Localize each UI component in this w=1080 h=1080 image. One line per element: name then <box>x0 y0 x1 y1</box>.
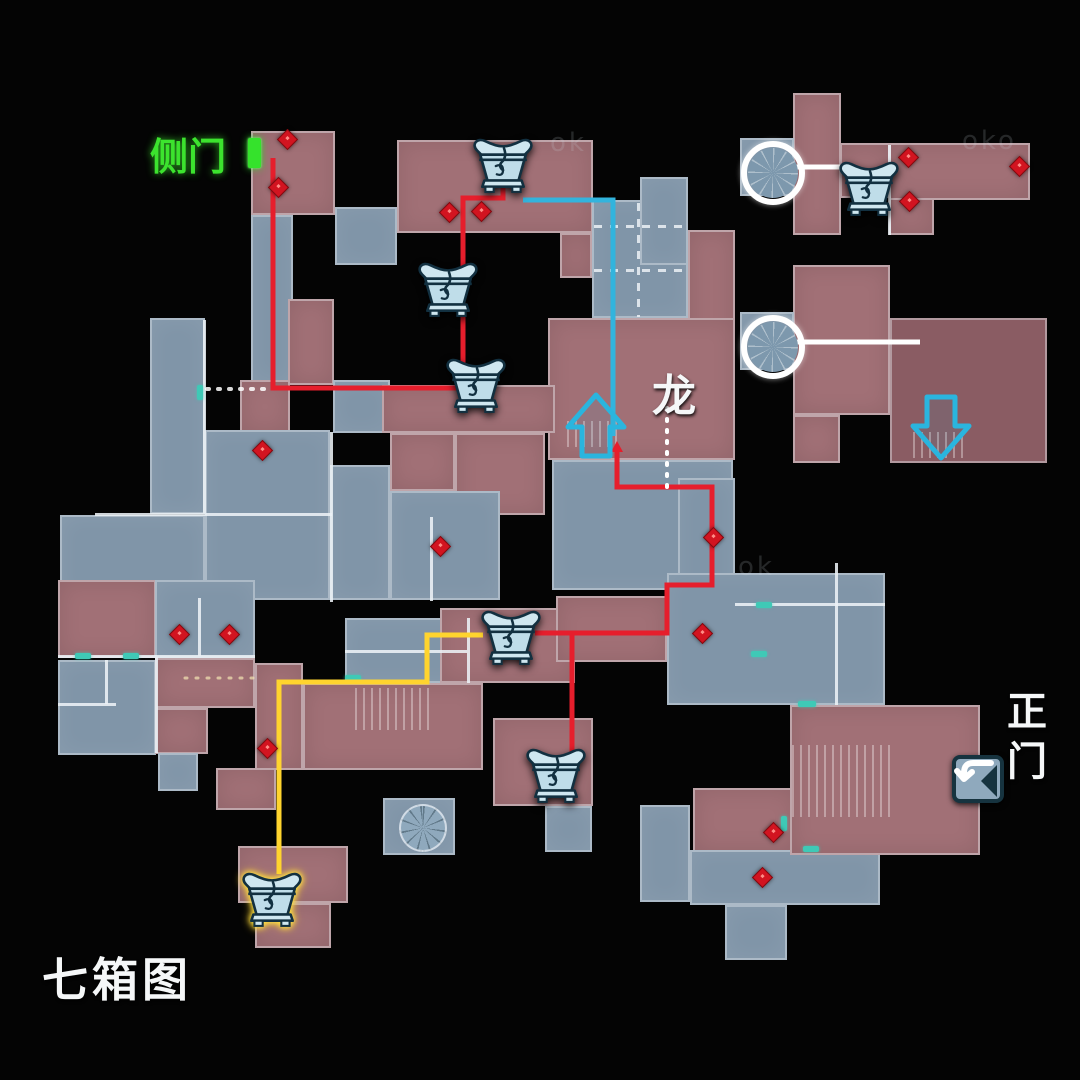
main-gate-label: 正门 <box>994 690 1052 810</box>
watermark-text: ok <box>550 128 587 158</box>
side-door-label: 侧门 <box>150 126 226 181</box>
game-map-screenshot: 侧门 龙 正门 七箱图 okookok <box>0 0 1080 1080</box>
labels-layer: 侧门 龙 正门 七箱图 okookok <box>0 0 1080 1080</box>
map-title: 七箱图 <box>42 944 192 1010</box>
watermark-text: ok <box>738 552 775 582</box>
watermark-text: oko <box>962 126 1017 156</box>
dragon-label: 龙 <box>652 360 696 424</box>
